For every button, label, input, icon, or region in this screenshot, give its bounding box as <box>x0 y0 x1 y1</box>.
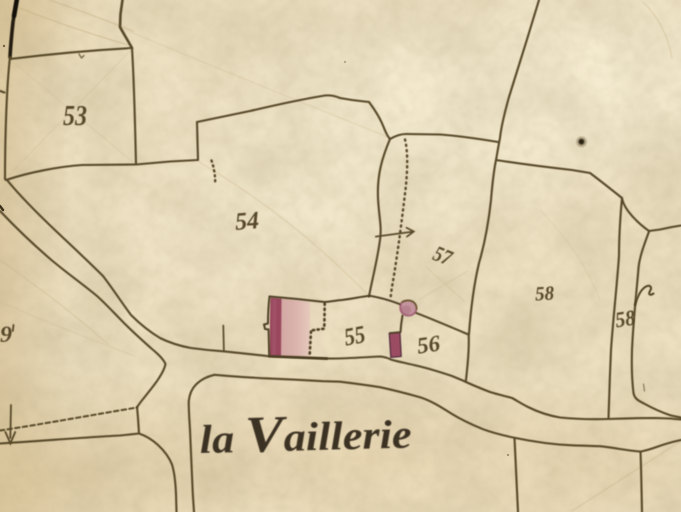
svg-text:53: 53 <box>63 100 87 132</box>
svg-text:58: 58 <box>613 305 636 333</box>
svg-text:58: 58 <box>534 283 554 306</box>
svg-text:56: 56 <box>415 331 442 359</box>
svg-text:9: 9 <box>0 322 13 347</box>
svg-text:54: 54 <box>234 207 260 236</box>
